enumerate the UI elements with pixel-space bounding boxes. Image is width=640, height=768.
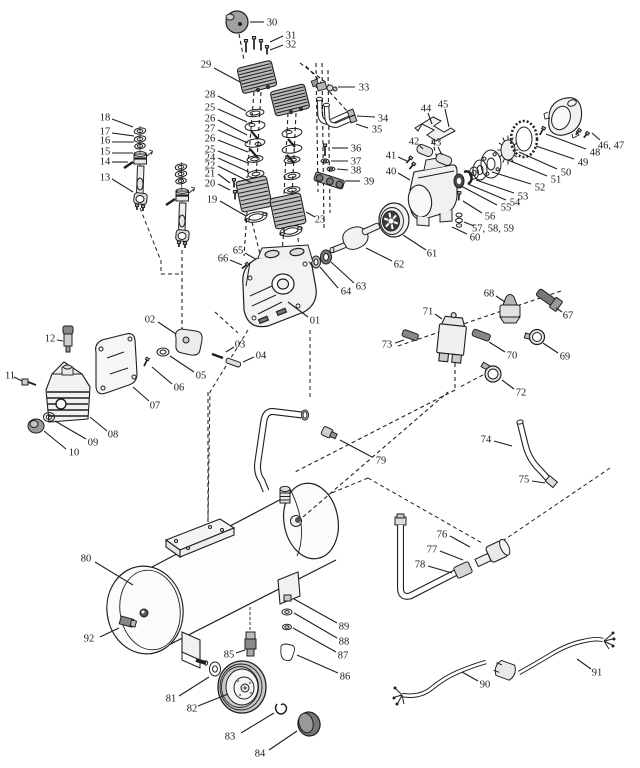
svg-text:75: 75 xyxy=(519,475,530,486)
svg-text:34: 34 xyxy=(378,114,389,125)
svg-text:51: 51 xyxy=(551,175,562,186)
svg-text:12: 12 xyxy=(45,334,56,345)
svg-text:13: 13 xyxy=(100,173,111,184)
svg-text:32: 32 xyxy=(286,40,297,51)
svg-text:50: 50 xyxy=(561,168,572,179)
svg-text:07: 07 xyxy=(150,401,161,412)
svg-text:03: 03 xyxy=(235,340,246,351)
svg-text:09: 09 xyxy=(88,438,99,449)
svg-text:01: 01 xyxy=(310,316,321,327)
svg-text:77: 77 xyxy=(427,545,438,556)
svg-text:41: 41 xyxy=(386,151,397,162)
svg-text:68: 68 xyxy=(484,289,495,300)
svg-text:56: 56 xyxy=(485,212,496,223)
svg-text:10: 10 xyxy=(69,448,80,459)
svg-text:65: 65 xyxy=(233,246,244,257)
svg-text:91: 91 xyxy=(592,668,603,679)
svg-text:54: 54 xyxy=(510,198,521,209)
svg-text:80: 80 xyxy=(81,554,92,565)
svg-text:16: 16 xyxy=(100,136,111,147)
svg-text:71: 71 xyxy=(423,307,434,318)
svg-text:79: 79 xyxy=(376,456,387,467)
svg-text:62: 62 xyxy=(394,260,405,271)
svg-text:28: 28 xyxy=(205,90,216,101)
svg-text:52: 52 xyxy=(535,183,546,194)
svg-text:06: 06 xyxy=(174,383,185,394)
svg-text:86: 86 xyxy=(340,672,351,683)
svg-text:44: 44 xyxy=(421,104,432,115)
svg-text:05: 05 xyxy=(196,371,207,382)
svg-text:83: 83 xyxy=(225,732,236,743)
svg-text:08: 08 xyxy=(108,430,119,441)
svg-text:64: 64 xyxy=(341,287,352,298)
svg-text:72: 72 xyxy=(516,388,527,399)
svg-text:88: 88 xyxy=(339,637,350,648)
svg-text:70: 70 xyxy=(507,351,518,362)
svg-text:35: 35 xyxy=(372,125,383,136)
svg-text:89: 89 xyxy=(339,622,350,633)
svg-text:45: 45 xyxy=(438,100,449,111)
svg-text:36: 36 xyxy=(351,144,362,155)
svg-text:74: 74 xyxy=(481,435,492,446)
svg-text:04: 04 xyxy=(256,351,267,362)
svg-text:87: 87 xyxy=(338,651,349,662)
svg-text:33: 33 xyxy=(359,83,370,94)
svg-text:78: 78 xyxy=(415,560,426,571)
svg-text:81: 81 xyxy=(166,694,177,705)
svg-text:55: 55 xyxy=(501,203,512,214)
svg-text:19: 19 xyxy=(207,195,218,206)
svg-text:29: 29 xyxy=(201,60,212,71)
svg-text:92: 92 xyxy=(84,634,95,645)
svg-text:90: 90 xyxy=(480,680,491,691)
svg-text:14: 14 xyxy=(100,157,111,168)
svg-text:63: 63 xyxy=(356,282,367,293)
svg-text:46, 47: 46, 47 xyxy=(598,141,624,152)
svg-text:43: 43 xyxy=(431,138,442,149)
svg-text:61: 61 xyxy=(427,249,438,260)
svg-text:11: 11 xyxy=(5,371,15,382)
svg-text:49: 49 xyxy=(578,158,589,169)
svg-text:38: 38 xyxy=(351,166,362,177)
svg-text:02: 02 xyxy=(145,315,156,326)
svg-text:30: 30 xyxy=(267,18,278,29)
svg-text:73: 73 xyxy=(382,340,393,351)
svg-text:26: 26 xyxy=(205,134,216,145)
svg-text:76: 76 xyxy=(437,530,448,541)
svg-text:39: 39 xyxy=(364,177,375,188)
svg-text:20: 20 xyxy=(205,179,216,190)
svg-text:84: 84 xyxy=(255,749,266,760)
svg-text:82: 82 xyxy=(187,704,198,715)
svg-text:25: 25 xyxy=(205,103,216,114)
svg-text:69: 69 xyxy=(560,352,571,363)
svg-text:40: 40 xyxy=(386,167,397,178)
svg-text:18: 18 xyxy=(100,113,111,124)
svg-text:66: 66 xyxy=(218,254,229,265)
svg-text:67: 67 xyxy=(563,311,574,322)
svg-text:85: 85 xyxy=(224,650,235,661)
svg-text:42: 42 xyxy=(409,137,420,148)
svg-text:48: 48 xyxy=(590,148,601,159)
svg-text:23: 23 xyxy=(315,215,326,226)
svg-text:60: 60 xyxy=(470,233,481,244)
